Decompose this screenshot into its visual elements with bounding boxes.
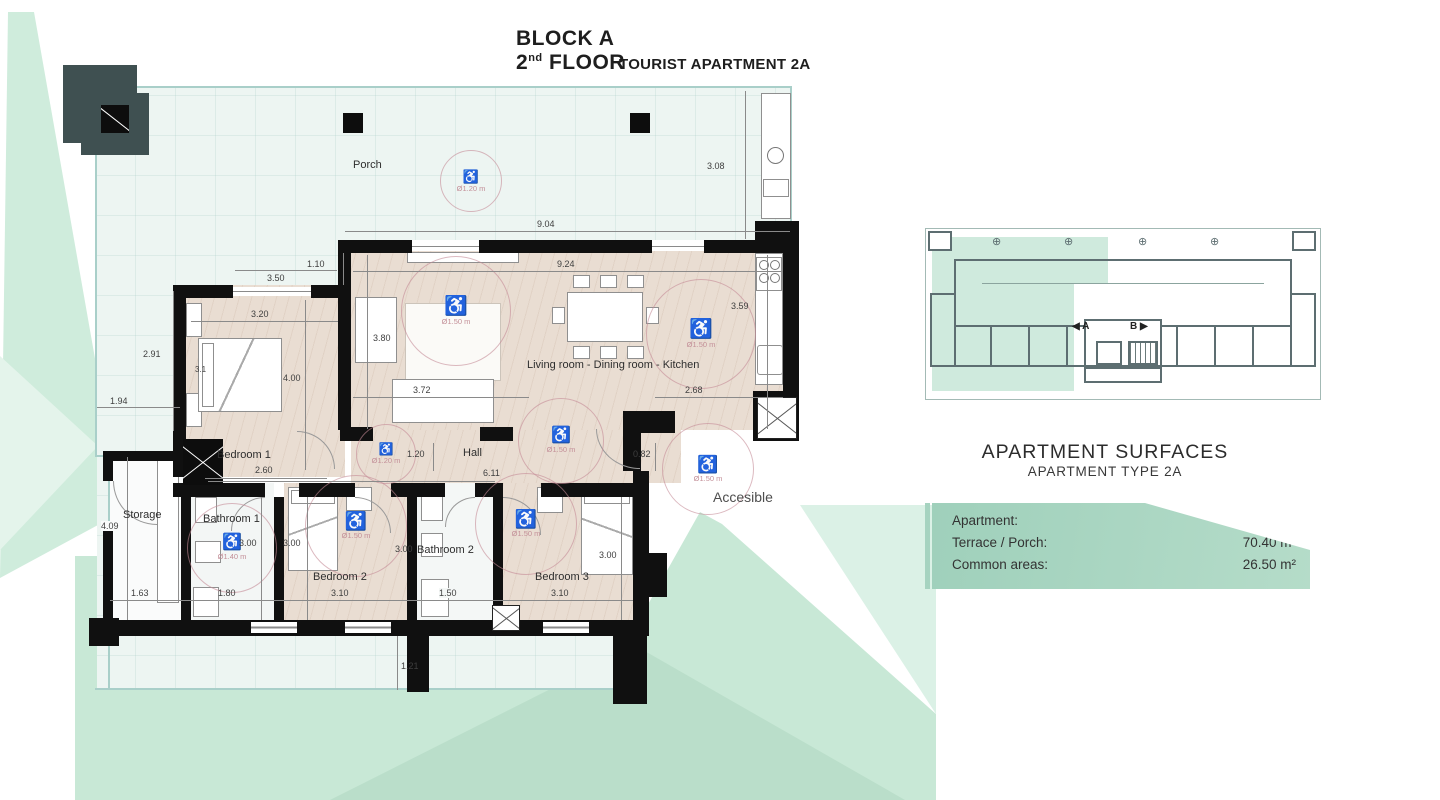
grid-marker-icon: ⊕ xyxy=(1138,237,1147,248)
dim-label: 1.50 xyxy=(439,588,457,598)
title-floor: 2nd FLOOR xyxy=(516,51,625,75)
surfaces-title: APARTMENT SURFACES xyxy=(940,441,1270,464)
accessibility-circle: ♿ Ø1.50 m xyxy=(646,279,756,389)
pillow xyxy=(202,343,214,407)
dim-label: 1.10 xyxy=(307,259,325,269)
dim-label: 9.24 xyxy=(557,259,575,269)
dim-label: 1.20 xyxy=(407,449,425,459)
wheelchair-icon: ♿ xyxy=(463,170,479,183)
room-label-bedroom2: Bedroom 2 xyxy=(313,571,367,583)
overview-wing xyxy=(1290,293,1316,367)
dim-label: 6.11 xyxy=(483,468,500,478)
surface-value: 70.40 m² xyxy=(1243,535,1296,555)
wheelchair-icon: ♿ xyxy=(444,297,468,316)
surfaces-row: Terrace / Porch: 70.40 m² xyxy=(952,535,1296,555)
overview-entrance xyxy=(1084,367,1162,383)
dim-label: 3.20 xyxy=(251,309,269,319)
column xyxy=(630,113,650,133)
surfaces-row: Apartment: 106.20 m² xyxy=(952,513,1296,533)
overview-stairs xyxy=(1128,341,1158,365)
dim-label: 1.80 xyxy=(218,588,236,598)
overview-label-a: ◀ A xyxy=(1072,321,1089,332)
wheelchair-icon: ♿ xyxy=(379,443,394,455)
surface-value: 106.20 m² xyxy=(1235,513,1296,533)
overview-corner-pillar xyxy=(1292,231,1316,251)
dim-label: 3.00 xyxy=(239,538,257,548)
wheelchair-icon: ♿ xyxy=(551,428,571,444)
page: { "title": { "line1": "BLOCK A", "floor_… xyxy=(0,0,1440,800)
wardrobe xyxy=(186,303,202,337)
surfaces-panel-sliver xyxy=(925,503,930,589)
dim-label: 1.94 xyxy=(110,396,128,406)
grid-marker-icon: ⊕ xyxy=(992,237,1001,248)
dim-label: 3.72 xyxy=(413,385,431,395)
grid-marker-icon: ⊕ xyxy=(1064,237,1073,248)
title-apartment: TOURIST APARTMENT 2A xyxy=(619,56,811,73)
accessible-label: Accesible xyxy=(713,489,773,505)
surfaces-panel: Apartment: 106.20 m² Terrace / Porch: 70… xyxy=(932,503,1310,589)
wheelchair-icon: ♿ xyxy=(697,456,718,473)
surface-value: 26.50 m² xyxy=(1243,557,1296,577)
room-label-bathroom2: Bathroom 2 xyxy=(417,544,474,556)
dim-label: 3.00 xyxy=(395,544,413,554)
sink xyxy=(421,495,443,521)
chair xyxy=(600,275,617,288)
shower xyxy=(421,579,449,617)
dining-table xyxy=(567,292,643,342)
surfaces-subtitle: APARTMENT TYPE 2A xyxy=(940,464,1270,479)
building-overview-plan: ⊕ ⊕ ⊕ ⊕ ◀ A B ▶ xyxy=(925,228,1321,400)
armchair xyxy=(355,297,397,363)
surface-label: Apartment: xyxy=(952,513,1018,533)
accessibility-circle: ♿ Ø1.20 m xyxy=(440,150,502,212)
dim-label: 4.00 xyxy=(283,373,301,383)
room-label-hall: Hall xyxy=(463,447,482,459)
dim-label: 3.1 xyxy=(195,365,206,374)
overview-label-b: B ▶ xyxy=(1130,321,1148,332)
dim-label: 3.10 xyxy=(331,588,349,598)
dim-label: 4.09 xyxy=(101,521,119,531)
corner-column xyxy=(101,105,129,133)
porch-appliance xyxy=(763,179,789,197)
accessibility-circle: ♿ Ø1.50 m xyxy=(518,398,604,484)
dim-label: 3.10 xyxy=(551,588,569,598)
room-label-living: Living room - Dining room - Kitchen xyxy=(527,359,699,371)
overview-elevator xyxy=(1096,341,1122,365)
dim-label: 0.82 xyxy=(633,449,651,459)
room-label-bedroom1: Bedroom 1 xyxy=(217,449,271,461)
dim-label: 3.59 xyxy=(731,301,749,311)
dim-label: 1.21 xyxy=(401,661,419,671)
wheelchair-icon: ♿ xyxy=(689,320,713,339)
room-label-bedroom3: Bedroom 3 xyxy=(535,571,589,583)
porch-sink xyxy=(767,147,784,164)
wheelchair-icon: ♿ xyxy=(345,512,367,530)
dim-label: 2.91 xyxy=(143,349,161,359)
accessibility-circle: ♿ Ø1.50 m xyxy=(475,473,577,575)
dim-label: 3.00 xyxy=(599,550,617,560)
shower xyxy=(193,587,219,617)
chair xyxy=(573,346,590,359)
wheelchair-icon: ♿ xyxy=(515,510,537,528)
accessibility-circle: ♿ Ø1.50 m xyxy=(401,256,511,366)
dim-label: 2.68 xyxy=(685,385,703,395)
room-label-bathroom1: Bathroom 1 xyxy=(203,513,260,525)
column xyxy=(343,113,363,133)
dim-label: 1.63 xyxy=(131,588,149,598)
room-label-storage: Storage xyxy=(123,509,162,521)
chair xyxy=(552,307,565,324)
storage-shelf xyxy=(157,457,179,603)
dim-label: 2.60 xyxy=(255,465,273,475)
sofa xyxy=(392,379,494,423)
title-block: BLOCK A 2nd FLOOR xyxy=(516,27,625,75)
chair xyxy=(573,275,590,288)
grid-marker-icon: ⊕ xyxy=(1210,237,1219,248)
chair xyxy=(600,346,617,359)
overview-wing xyxy=(930,293,956,367)
chair xyxy=(627,275,644,288)
overview-corner-pillar xyxy=(928,231,952,251)
kitchen-sink xyxy=(757,345,783,375)
room-label-porch: Porch xyxy=(353,159,382,171)
chair xyxy=(627,346,644,359)
stove-burner xyxy=(770,260,780,270)
surface-label: Common areas: xyxy=(952,557,1048,577)
duct-xbox xyxy=(492,605,520,631)
dim-label: 9.04 xyxy=(537,219,555,229)
floor-plan: ♿ Ø1.20 m ♿ Ø1.50 m ♿ Ø1.50 m ♿ Ø1.50 m … xyxy=(55,55,803,715)
dim-label: 3.00 xyxy=(283,538,301,548)
surfaces-row: Common areas: 26.50 m² xyxy=(952,557,1296,577)
dim-label: 3.50 xyxy=(267,273,285,283)
accessibility-circle: ♿ Ø1.50 m xyxy=(305,475,407,577)
title-block-a: BLOCK A xyxy=(516,27,625,51)
dim-label: 3.08 xyxy=(707,161,725,171)
duct-xbox xyxy=(757,397,797,439)
dim-label: 3.80 xyxy=(373,333,391,343)
stove-burner xyxy=(770,273,780,283)
surface-label: Terrace / Porch: xyxy=(952,535,1047,555)
